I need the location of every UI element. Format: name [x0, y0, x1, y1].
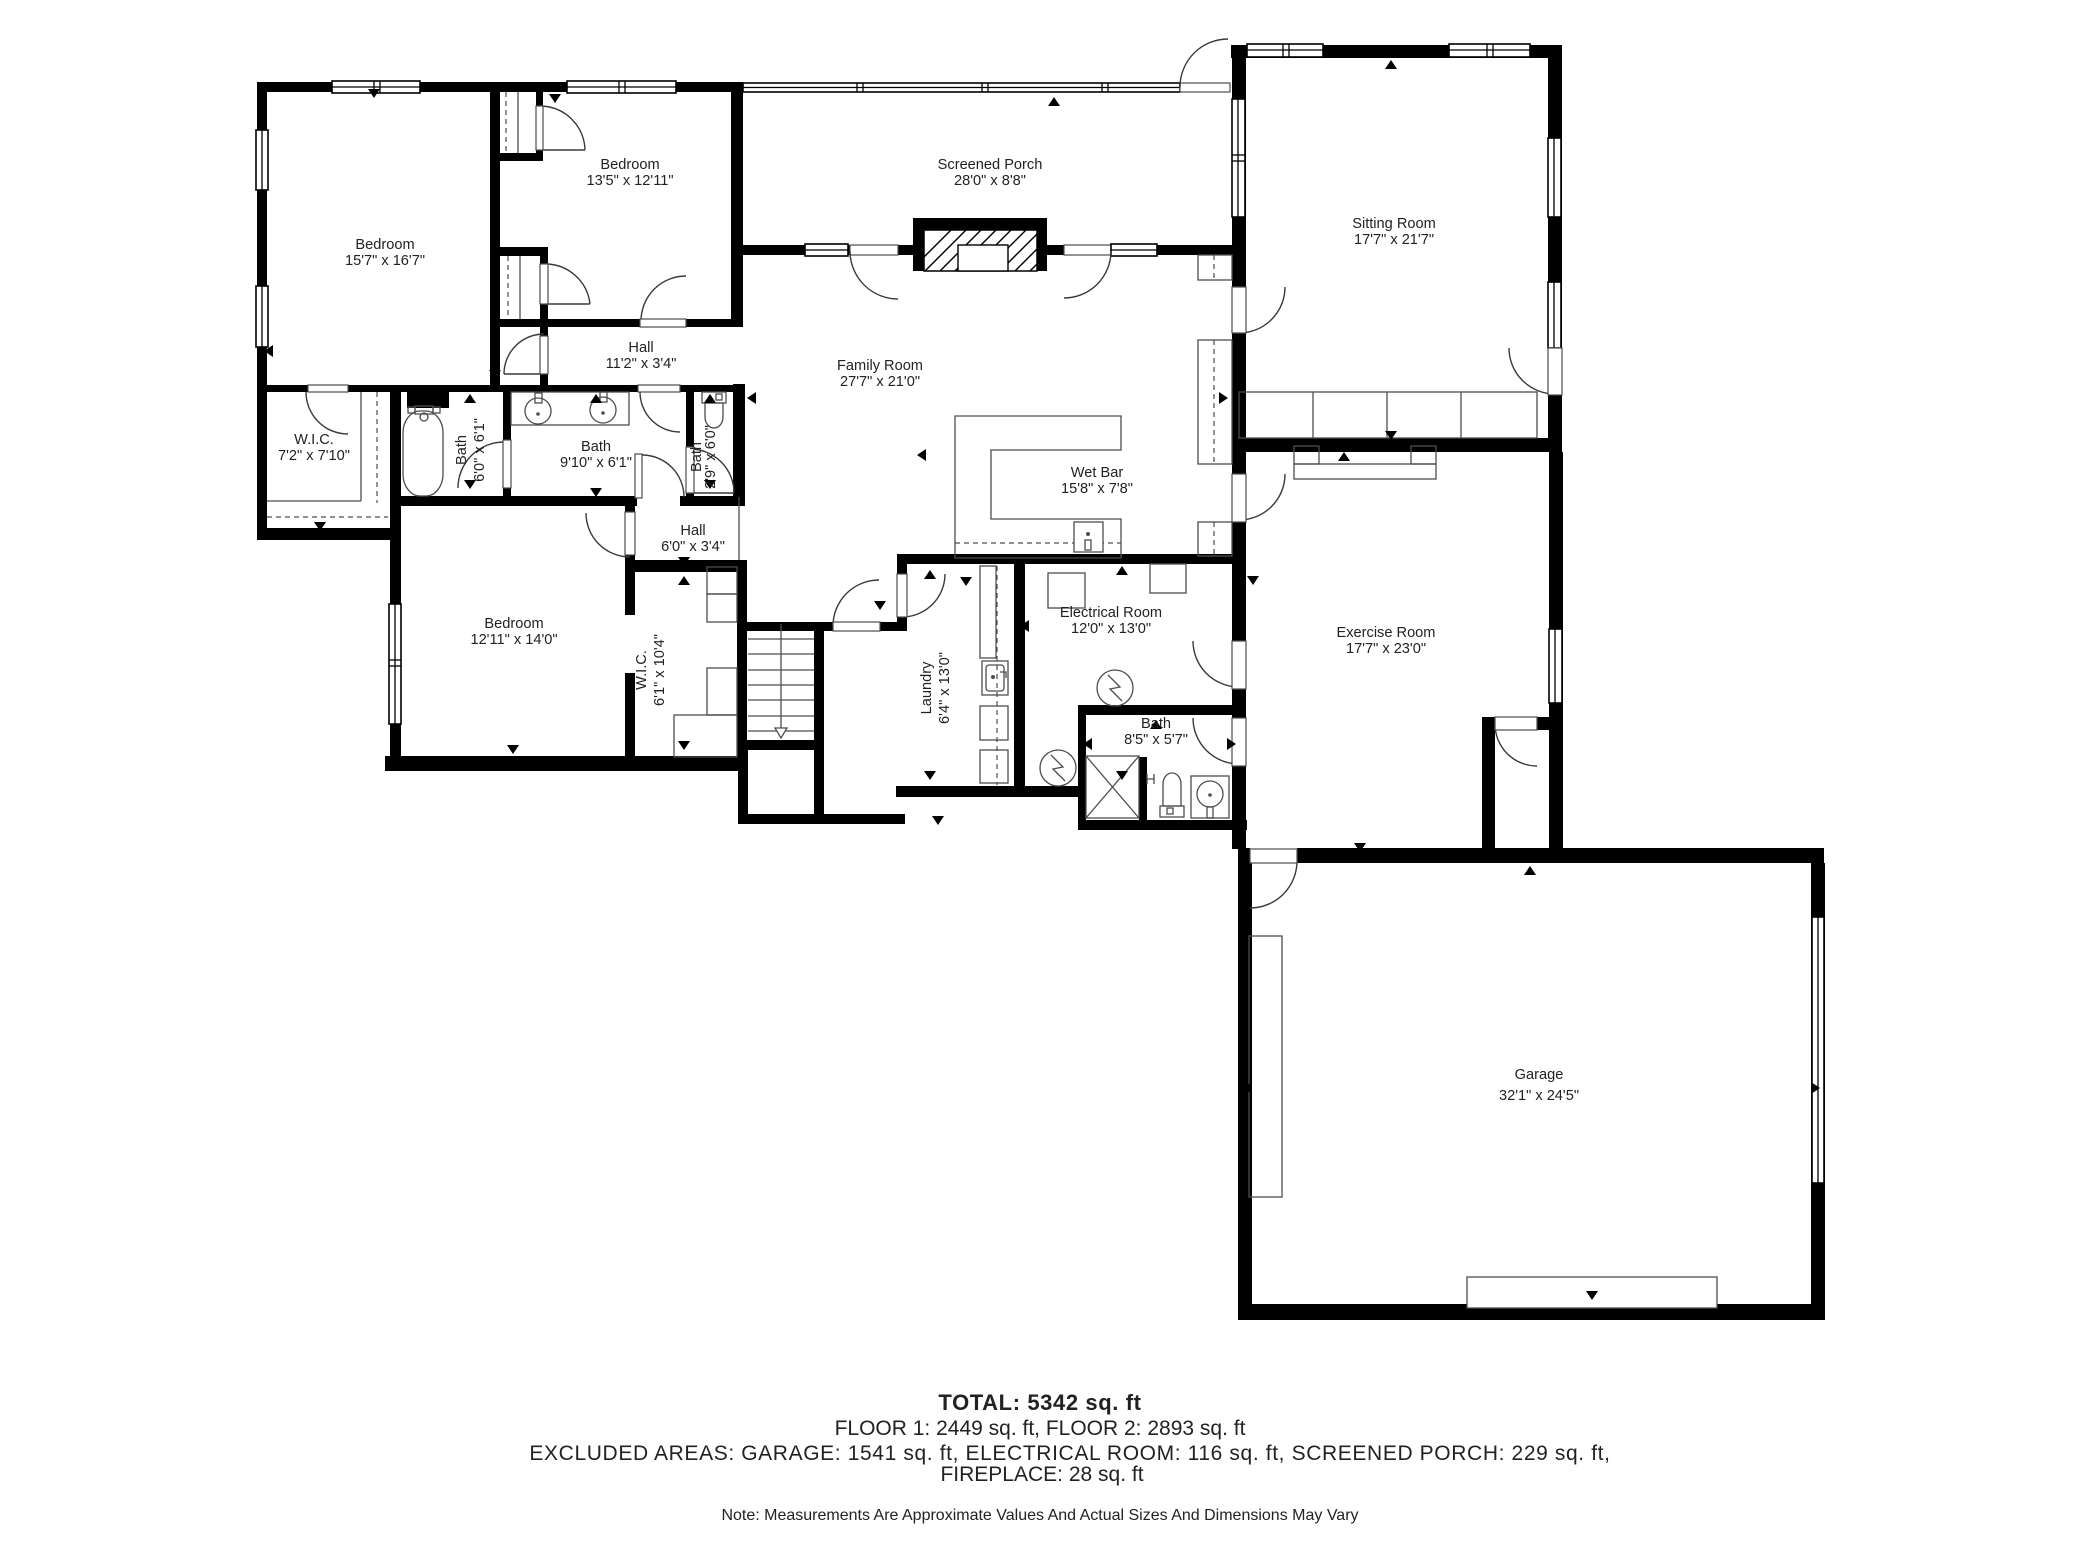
svg-text:Bath: Bath: [454, 435, 470, 465]
svg-text:EXCLUDED AREAS: GARAGE: 1541 s: EXCLUDED AREAS: GARAGE: 1541 sq. ft, ELE…: [529, 1442, 1610, 1465]
svg-text:FIREPLACE: 28 sq. ft: FIREPLACE: 28 sq. ft: [940, 1463, 1143, 1486]
svg-text:6'0" x 6'1": 6'0" x 6'1": [472, 418, 488, 482]
svg-text:6'1" x 10'4": 6'1" x 10'4": [652, 634, 668, 706]
svg-text:9'10" x 6'1": 9'10" x 6'1": [560, 455, 632, 471]
svg-text:TOTAL: 5342 sq. ft: TOTAL: 5342 sq. ft: [938, 1390, 1141, 1415]
svg-text:Screened Porch: Screened Porch: [938, 157, 1043, 173]
svg-text:12'0" x 13'0": 12'0" x 13'0": [1071, 621, 1151, 637]
svg-text:Hall: Hall: [628, 340, 653, 356]
svg-text:17'7" x 23'0": 17'7" x 23'0": [1346, 641, 1426, 657]
svg-text:6'0" x 3'4": 6'0" x 3'4": [661, 539, 725, 555]
svg-text:Bath: Bath: [581, 439, 611, 455]
svg-text:Sitting Room: Sitting Room: [1352, 216, 1436, 232]
svg-text:27'7" x 21'0": 27'7" x 21'0": [840, 374, 920, 390]
svg-text:Hall: Hall: [680, 523, 705, 539]
svg-text:Bedroom: Bedroom: [600, 157, 659, 173]
svg-text:Bedroom: Bedroom: [484, 616, 543, 632]
svg-text:Note: Measurements Are Approxi: Note: Measurements Are Approximate Value…: [721, 1507, 1358, 1524]
svg-text:Bath: Bath: [1141, 716, 1171, 732]
svg-text:Garage: Garage: [1515, 1067, 1564, 1083]
svg-text:6'4" x 13'0": 6'4" x 13'0": [937, 652, 953, 724]
svg-text:FLOOR 1: 2449 sq. ft, FLOOR 2:: FLOOR 1: 2449 sq. ft, FLOOR 2: 2893 sq. …: [835, 1417, 1246, 1440]
svg-text:Electrical Room: Electrical Room: [1060, 605, 1162, 621]
svg-text:28'0" x 8'8": 28'0" x 8'8": [954, 173, 1026, 189]
svg-text:Laundry: Laundry: [919, 661, 935, 714]
svg-text:8'5" x 5'7": 8'5" x 5'7": [1124, 732, 1188, 748]
svg-text:Wet Bar: Wet Bar: [1071, 465, 1124, 481]
svg-text:15'7" x 16'7": 15'7" x 16'7": [345, 253, 425, 269]
svg-text:W.I.C.: W.I.C.: [294, 432, 334, 448]
svg-text:Family Room: Family Room: [837, 358, 923, 374]
svg-text:7'2" x 7'10": 7'2" x 7'10": [278, 448, 350, 464]
svg-text:11'2" x 3'4": 11'2" x 3'4": [606, 356, 677, 372]
svg-text:17'7" x 21'7": 17'7" x 21'7": [1354, 232, 1434, 248]
svg-text:W.I.C.: W.I.C.: [634, 650, 650, 690]
svg-text:15'8" x 7'8": 15'8" x 7'8": [1061, 481, 1133, 497]
svg-text:Bedroom: Bedroom: [355, 237, 414, 253]
svg-text:13'5" x 12'11": 13'5" x 12'11": [586, 173, 673, 189]
svg-text:2'9" x 6'0": 2'9" x 6'0": [703, 425, 719, 489]
svg-text:Exercise Room: Exercise Room: [1337, 625, 1436, 641]
svg-text:12'11" x 14'0": 12'11" x 14'0": [470, 632, 557, 648]
svg-text:32'1" x 24'5": 32'1" x 24'5": [1499, 1088, 1579, 1104]
